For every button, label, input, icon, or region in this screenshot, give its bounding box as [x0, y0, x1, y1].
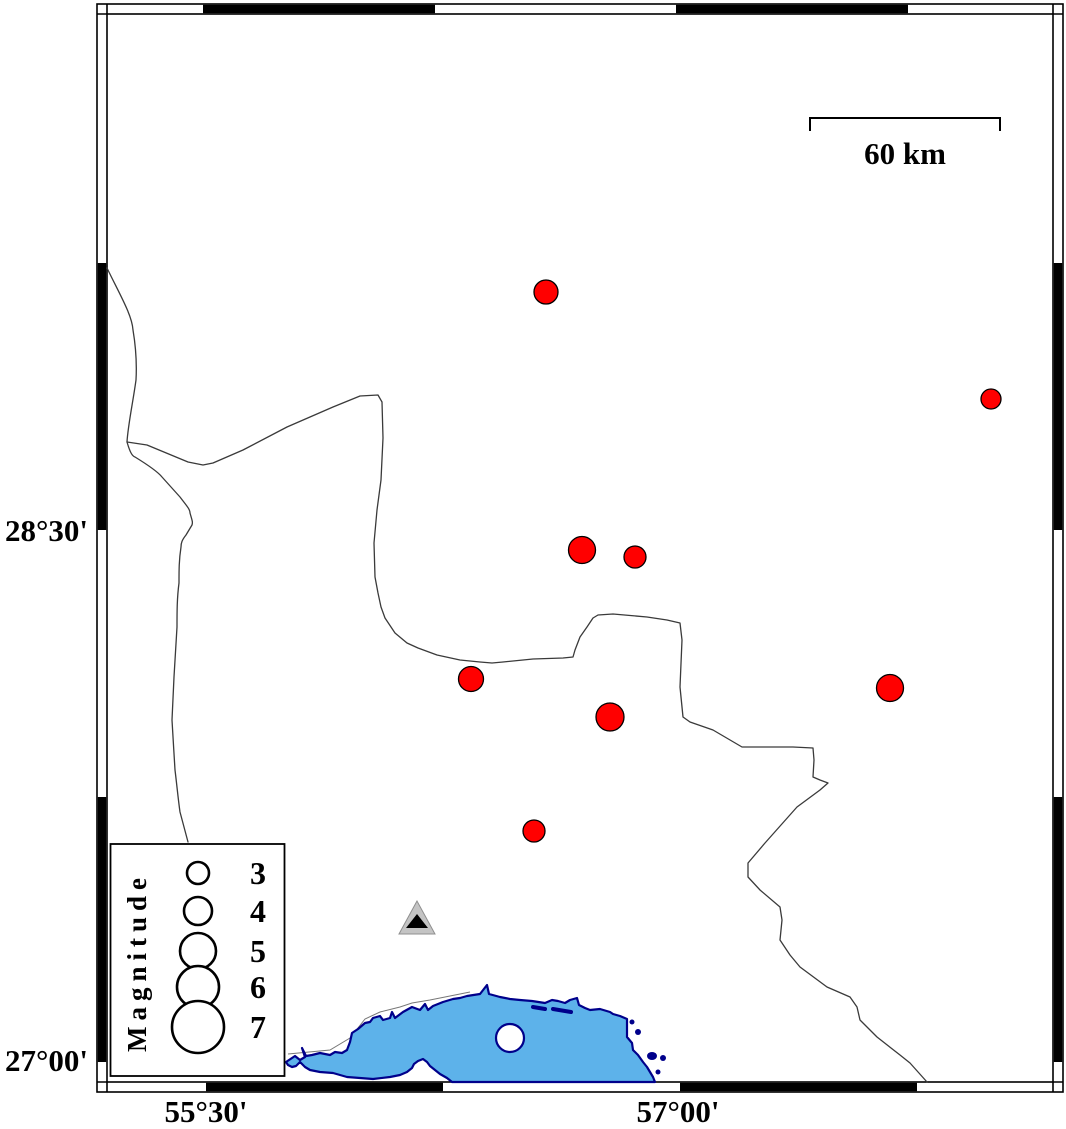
frame-seg-left-1 — [98, 263, 106, 530]
map-canvas: Magnitude 34567 60 km 28°30' 27°00' 55°3… — [0, 0, 1066, 1129]
legend-title: Magnitude — [122, 872, 152, 1052]
earthquake-epicenter — [534, 280, 558, 304]
legend-circle-mag-3 — [187, 862, 209, 884]
earthquake-epicenter — [624, 546, 646, 568]
seismicity-map: Magnitude 34567 60 km 28°30' 27°00' 55°3… — [0, 0, 1066, 1129]
island — [496, 1024, 524, 1052]
frame-seg-left-2 — [98, 797, 106, 1062]
islet-3 — [647, 1052, 657, 1060]
frame-seg-bottom-1 — [206, 1083, 443, 1091]
islet-2 — [635, 1029, 641, 1035]
legend-number-mag-6: 6 — [250, 969, 266, 1005]
earthquake-epicenter — [569, 537, 596, 564]
legend-number-mag-7: 7 — [250, 1009, 266, 1045]
frame-seg-right-1 — [1054, 263, 1062, 530]
legend-number-mag-5: 5 — [250, 933, 266, 969]
islet-4 — [660, 1055, 666, 1061]
frame-seg-top-2 — [676, 5, 908, 13]
islet-1 — [630, 1020, 635, 1025]
earthquake-epicenter — [523, 820, 545, 842]
magnitude-legend: Magnitude 34567 — [111, 844, 285, 1076]
frame-seg-top-1 — [203, 5, 435, 13]
legend-number-mag-4: 4 — [250, 893, 266, 929]
coast-dash-1 — [533, 1007, 545, 1009]
lat-label-lower: 27°00' — [5, 1043, 88, 1078]
earthquake-epicenter — [596, 703, 624, 731]
earthquake-epicenter — [981, 389, 1001, 409]
islet-5 — [656, 1070, 661, 1075]
frame-seg-right-2 — [1054, 797, 1062, 1062]
scale-bar-label: 60 km — [864, 136, 946, 171]
frame-seg-bottom-2 — [680, 1083, 917, 1091]
legend-circle-mag-4 — [184, 897, 212, 925]
earthquake-epicenter — [459, 667, 484, 692]
lat-label-upper: 28°30' — [5, 513, 88, 548]
lon-label-right: 57°00' — [636, 1094, 719, 1129]
lon-label-left: 55°30' — [164, 1094, 247, 1129]
legend-circle-mag-5 — [180, 933, 216, 969]
legend-number-mag-3: 3 — [250, 855, 266, 891]
earthquake-epicenter — [877, 675, 904, 702]
legend-circle-mag-7 — [172, 1001, 224, 1053]
